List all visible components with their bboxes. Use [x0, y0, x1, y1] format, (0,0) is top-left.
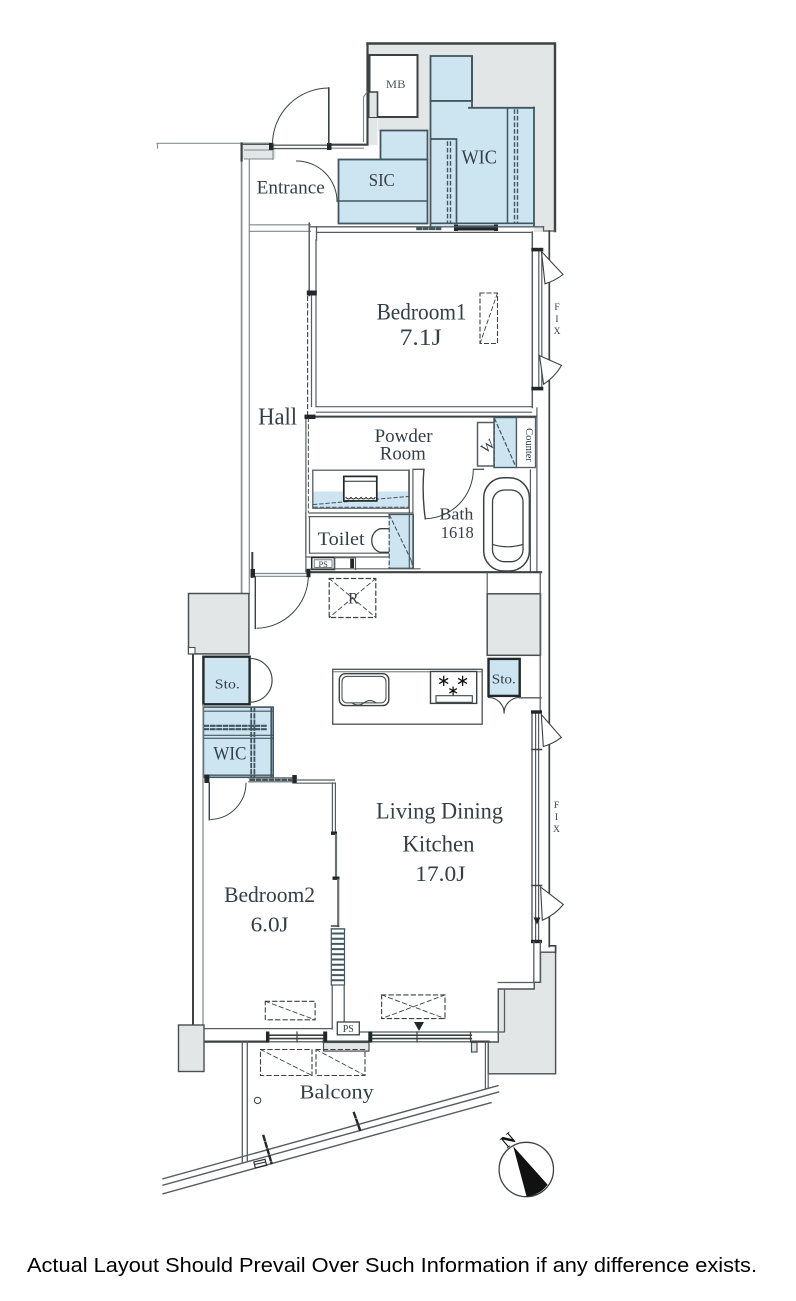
svg-text:Balcony: Balcony: [300, 1082, 374, 1104]
svg-text:Entrance: Entrance: [257, 178, 325, 199]
svg-text:MB: MB: [386, 77, 406, 91]
svg-text:Bedroom2: Bedroom2: [224, 882, 315, 907]
svg-text:Bedroom1: Bedroom1: [377, 300, 467, 325]
svg-text:7.1J: 7.1J: [400, 325, 442, 350]
svg-text:R: R: [348, 591, 359, 608]
svg-text:Actual Layout Should Prevail O: Actual Layout Should Prevail Over Such I…: [27, 1255, 757, 1277]
svg-text:I: I: [555, 813, 558, 823]
svg-text:F: F: [554, 801, 559, 811]
svg-text:Toilet: Toilet: [318, 529, 366, 550]
svg-text:Counter: Counter: [523, 428, 534, 462]
svg-text:SIC: SIC: [369, 170, 395, 190]
svg-text:F: F: [554, 303, 559, 313]
svg-text:WIC: WIC: [461, 147, 497, 169]
svg-text:Room: Room: [380, 445, 427, 465]
svg-text:X: X: [553, 825, 560, 835]
svg-text:1618: 1618: [441, 523, 474, 542]
svg-text:PS: PS: [318, 559, 328, 569]
svg-text:Sto.: Sto.: [215, 678, 240, 693]
svg-text:PS: PS: [343, 1024, 354, 1035]
svg-text:Hall: Hall: [258, 405, 297, 431]
svg-text:Kitchen: Kitchen: [403, 832, 475, 857]
svg-text:Living Dining: Living Dining: [376, 799, 503, 824]
svg-text:Sto.: Sto.: [492, 672, 516, 687]
svg-text:X: X: [554, 327, 561, 337]
svg-text:6.0J: 6.0J: [251, 913, 289, 937]
svg-text:WIC: WIC: [213, 744, 246, 765]
svg-text:17.0J: 17.0J: [415, 861, 465, 886]
svg-text:I: I: [555, 315, 558, 325]
